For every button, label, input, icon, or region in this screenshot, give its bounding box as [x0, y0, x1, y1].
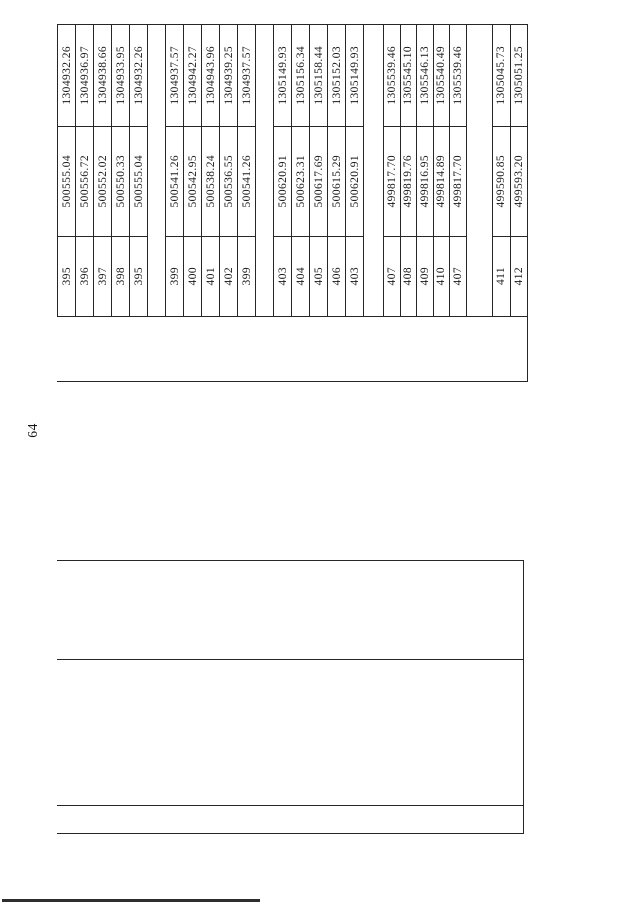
y-coordinate-value: 1304943.96 [205, 46, 217, 105]
y-coordinate-value: 1304939.25 [223, 46, 235, 105]
y-coordinate-cell: 1304939.25 [220, 25, 237, 127]
x-coordinate-cell: 500623.31 [292, 127, 309, 237]
x-coordinate-cell: 500620.91 [274, 127, 291, 237]
y-coordinate-value: 1304932.26 [133, 46, 145, 105]
x-coordinate-cell: 500556.72 [76, 127, 93, 237]
y-coordinate-value: 1305545.10 [402, 46, 414, 105]
point-number-cell: 410 [434, 237, 450, 316]
y-coordinate-cell: 1304936.97 [76, 25, 93, 127]
y-coordinate-value: 1305540.49 [435, 46, 447, 105]
y-coordinate-cell: 1305539.46 [384, 25, 400, 127]
record-column: 1304933.95 500550.33 398 [111, 25, 129, 316]
x-coordinate-value: 500555.04 [61, 155, 73, 207]
coordinate-table-columns: 1304932.26 500555.04 395 1304936.97 5005… [57, 25, 527, 317]
record-column: 1305051.25 499593.20 412 [510, 25, 528, 316]
table-empty-row [57, 317, 527, 381]
y-coordinate-cell: 1305158.44 [310, 25, 327, 127]
point-number-value: 403 [277, 267, 289, 285]
x-coordinate-cell: 499817.70 [384, 127, 400, 237]
y-coordinate-value: 1304933.95 [115, 46, 127, 105]
x-coordinate-cell: 500536.55 [220, 127, 237, 237]
point-number-value: 412 [513, 267, 525, 285]
record-column: 1304937.57 500541.26 399 [237, 25, 255, 316]
y-coordinate-value: 1304937.57 [241, 46, 253, 105]
point-number-cell: 399 [238, 237, 255, 316]
record-column: 1305540.49 499814.89 410 [433, 25, 450, 316]
record-column: 1305539.46 499817.70 407 [449, 25, 466, 316]
point-number-cell: 400 [184, 237, 201, 316]
point-number-value: 403 [349, 267, 361, 285]
point-number-cell: 412 [511, 237, 528, 316]
scanned-document-page: 1304932.26 500555.04 395 1304936.97 5005… [0, 0, 640, 905]
x-coordinate-value: 500615.29 [331, 155, 343, 207]
point-number-cell: 402 [220, 237, 237, 316]
record-column: 1305158.44 500617.69 405 [309, 25, 327, 316]
x-coordinate-value: 500623.31 [295, 155, 307, 207]
point-number-cell: 403 [274, 237, 291, 316]
y-coordinate-cell: 1305156.34 [292, 25, 309, 127]
point-number-cell: 407 [450, 237, 466, 316]
y-coordinate-cell: 1305149.93 [346, 25, 363, 127]
x-coordinate-value: 500541.26 [241, 155, 253, 207]
y-coordinate-value: 1305051.25 [513, 46, 525, 105]
y-coordinate-value: 1305156.34 [295, 46, 307, 105]
x-coordinate-value: 500555.04 [133, 155, 145, 207]
y-coordinate-value: 1305152.03 [331, 46, 343, 105]
y-coordinate-value: 1305546.13 [419, 46, 431, 105]
record-column: 1305149.93 500620.91 403 [273, 25, 291, 316]
point-number-value: 395 [61, 267, 73, 285]
x-coordinate-value: 500620.91 [277, 155, 289, 207]
continuation-table-cell [57, 660, 523, 806]
x-coordinate-cell: 499816.95 [417, 127, 433, 237]
point-number-value: 399 [169, 267, 181, 285]
x-coordinate-cell: 500617.69 [310, 127, 327, 237]
point-number-value: 404 [295, 267, 307, 285]
x-coordinate-cell: 500555.04 [58, 127, 75, 237]
x-coordinate-cell: 500541.26 [238, 127, 255, 237]
point-number-value: 398 [115, 267, 127, 285]
y-coordinate-cell: 1304943.96 [202, 25, 219, 127]
point-number-value: 399 [241, 267, 253, 285]
point-number-value: 406 [331, 267, 343, 285]
y-coordinate-value: 1304932.26 [61, 46, 73, 105]
y-coordinate-value: 1305539.46 [452, 46, 464, 105]
page-number: 64 [25, 423, 41, 443]
point-number-value: 411 [495, 267, 507, 285]
point-number-cell: 403 [346, 237, 363, 316]
y-coordinate-value: 1305158.44 [313, 46, 325, 105]
x-coordinate-cell: 499590.85 [493, 127, 510, 237]
x-coordinate-cell: 499814.89 [434, 127, 450, 237]
record-column: 1304932.26 500555.04 395 [129, 25, 147, 316]
record-column: 1305149.93 500620.91 403 [345, 25, 363, 316]
x-coordinate-cell: 499819.76 [401, 127, 417, 237]
x-coordinate-cell: 500550.33 [112, 127, 129, 237]
point-number-value: 400 [187, 267, 199, 285]
x-coordinate-cell: 500552.02 [94, 127, 111, 237]
point-number-cell: 404 [292, 237, 309, 316]
point-number-value: 405 [313, 267, 325, 285]
scan-edge-artifact [2, 899, 260, 902]
record-column: 1305156.34 500623.31 404 [291, 25, 309, 316]
point-number-cell: 399 [166, 237, 183, 316]
x-coordinate-cell: 499817.70 [450, 127, 466, 237]
y-coordinate-cell: 1304938.66 [94, 25, 111, 127]
record-column: 1305546.13 499816.95 409 [416, 25, 433, 316]
point-number-cell: 395 [58, 237, 75, 316]
y-coordinate-cell: 1305152.03 [328, 25, 345, 127]
y-coordinate-cell: 1305546.13 [417, 25, 433, 127]
y-coordinate-cell: 1304932.26 [130, 25, 147, 127]
continuation-table-cell [57, 561, 523, 660]
x-coordinate-value: 499816.95 [419, 155, 431, 207]
point-number-cell: 407 [384, 237, 400, 316]
point-number-value: 397 [97, 267, 109, 285]
y-coordinate-cell: 1305149.93 [274, 25, 291, 127]
y-coordinate-cell: 1305540.49 [434, 25, 450, 127]
point-number-cell: 411 [493, 237, 510, 316]
x-coordinate-cell: 500541.26 [166, 127, 183, 237]
point-number-cell: 408 [401, 237, 417, 316]
x-coordinate-value: 500550.33 [115, 155, 127, 207]
point-number-value: 401 [205, 267, 217, 285]
point-number-cell: 397 [94, 237, 111, 316]
record-column: 1305539.46 499817.70 407 [383, 25, 400, 316]
y-coordinate-value: 1305149.93 [349, 46, 361, 105]
x-coordinate-value: 500541.26 [169, 155, 181, 207]
y-coordinate-cell: 1305045.73 [493, 25, 510, 127]
x-coordinate-cell: 500620.91 [346, 127, 363, 237]
y-coordinate-cell: 1304937.57 [166, 25, 183, 127]
group-divider-column [147, 25, 165, 316]
point-number-cell: 396 [76, 237, 93, 316]
y-coordinate-cell: 1304937.57 [238, 25, 255, 127]
x-coordinate-value: 499814.89 [435, 155, 447, 207]
x-coordinate-value: 500542.95 [187, 155, 199, 207]
x-coordinate-cell: 500538.24 [202, 127, 219, 237]
x-coordinate-cell: 500555.04 [130, 127, 147, 237]
x-coordinate-value: 500552.02 [97, 155, 109, 207]
group-divider-column [466, 25, 492, 316]
x-coordinate-value: 500538.24 [205, 155, 217, 207]
x-coordinate-value: 500536.55 [223, 155, 235, 207]
x-coordinate-value: 499590.85 [495, 155, 507, 207]
coordinate-table: 1304932.26 500555.04 395 1304936.97 5005… [57, 24, 528, 382]
record-column: 1304943.96 500538.24 401 [201, 25, 219, 316]
x-coordinate-value: 499819.76 [402, 155, 414, 207]
x-coordinate-cell: 500615.29 [328, 127, 345, 237]
x-coordinate-value: 499817.70 [452, 155, 464, 207]
point-number-cell: 395 [130, 237, 147, 316]
point-number-cell: 398 [112, 237, 129, 316]
group-divider-column [255, 25, 273, 316]
y-coordinate-value: 1304942.27 [187, 46, 199, 105]
point-number-value: 407 [386, 267, 398, 285]
x-coordinate-value: 499817.70 [386, 155, 398, 207]
record-column: 1305045.73 499590.85 411 [492, 25, 510, 316]
record-column: 1304932.26 500555.04 395 [57, 25, 75, 316]
y-coordinate-cell: 1305545.10 [401, 25, 417, 127]
y-coordinate-value: 1305149.93 [277, 46, 289, 105]
x-coordinate-cell: 500542.95 [184, 127, 201, 237]
point-number-value: 402 [223, 267, 235, 285]
record-column: 1304937.57 500541.26 399 [165, 25, 183, 316]
x-coordinate-value: 500617.69 [313, 155, 325, 207]
y-coordinate-cell: 1304933.95 [112, 25, 129, 127]
record-column: 1305152.03 500615.29 406 [327, 25, 345, 316]
record-column: 1304936.97 500556.72 396 [75, 25, 93, 316]
x-coordinate-cell: 499593.20 [511, 127, 528, 237]
y-coordinate-cell: 1305051.25 [511, 25, 528, 127]
page-number-value: 64 [25, 423, 41, 438]
point-number-value: 395 [133, 267, 145, 285]
x-coordinate-value: 499593.20 [513, 155, 525, 207]
point-number-value: 409 [419, 267, 431, 285]
y-coordinate-cell: 1304942.27 [184, 25, 201, 127]
record-column: 1304939.25 500536.55 402 [219, 25, 237, 316]
point-number-cell: 401 [202, 237, 219, 316]
y-coordinate-value: 1304938.66 [97, 46, 109, 105]
y-coordinate-cell: 1304932.26 [58, 25, 75, 127]
point-number-value: 407 [452, 267, 464, 285]
point-number-value: 396 [79, 267, 91, 285]
point-number-cell: 409 [417, 237, 433, 316]
y-coordinate-cell: 1305539.46 [450, 25, 466, 127]
group-divider-column [363, 25, 383, 316]
point-number-cell: 406 [328, 237, 345, 316]
y-coordinate-value: 1305045.73 [495, 46, 507, 105]
continuation-table [57, 560, 524, 834]
y-coordinate-value: 1305539.46 [386, 46, 398, 105]
y-coordinate-value: 1304937.57 [169, 46, 181, 105]
point-number-value: 410 [435, 267, 447, 285]
y-coordinate-value: 1304936.97 [79, 46, 91, 105]
record-column: 1305545.10 499819.76 408 [400, 25, 417, 316]
x-coordinate-value: 500620.91 [349, 155, 361, 207]
record-column: 1304942.27 500542.95 400 [183, 25, 201, 316]
x-coordinate-value: 500556.72 [79, 155, 91, 207]
record-column: 1304938.66 500552.02 397 [93, 25, 111, 316]
point-number-value: 408 [402, 267, 414, 285]
point-number-cell: 405 [310, 237, 327, 316]
